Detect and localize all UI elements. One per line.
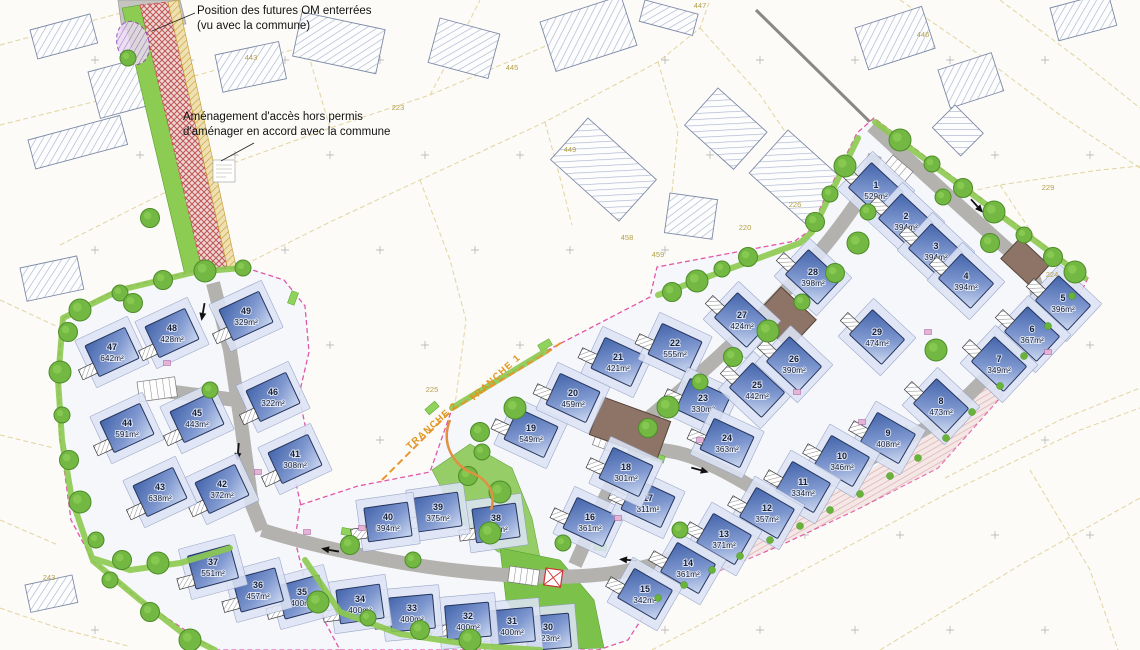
lot-number-label: 24: [722, 433, 732, 443]
lot-number-label: 31: [507, 616, 517, 626]
parcel-number: 224: [1046, 270, 1059, 279]
tree-icon: [829, 267, 837, 275]
tree-icon: [863, 207, 869, 213]
lot-area-label: 400m²: [500, 627, 524, 637]
parcel-number: 226: [789, 200, 802, 209]
lot-number-label: 26: [789, 354, 799, 364]
tree-icon: [157, 274, 165, 282]
tree-icon: [144, 212, 152, 220]
lot-area-label: 473m²: [929, 407, 953, 417]
tree-icon: [558, 538, 564, 544]
bush-icon: [655, 595, 662, 602]
lot-area-label: 361m²: [676, 569, 700, 579]
tree-icon: [893, 133, 902, 142]
bush-icon: [827, 507, 834, 514]
lot-area-label: 442m²: [745, 391, 769, 401]
tree-icon: [508, 401, 517, 410]
annotation-access-line2: d'aménager en accord avec la commune: [183, 125, 390, 140]
utility-box: [164, 361, 171, 366]
site-plan-drawing: 1529m²2394m²3394m²4394m²5396m²6367m²7349…: [0, 0, 1140, 650]
bush-icon: [797, 523, 804, 530]
tree-icon: [797, 297, 803, 303]
tree-icon: [363, 613, 369, 619]
tree-icon: [151, 556, 160, 565]
house-footprint: [414, 492, 462, 532]
bush-icon: [857, 491, 864, 498]
parcel-number: 446: [917, 30, 930, 39]
tree-icon: [483, 526, 492, 535]
bush-icon: [709, 567, 716, 574]
lot-area-label: 334m²: [791, 488, 815, 498]
lot-area-label: 394m²: [954, 282, 978, 292]
lot-area-label: 346m²: [830, 462, 854, 472]
lot-number-label: 25: [752, 380, 762, 390]
lot-number-label: 34: [355, 594, 365, 604]
lot-number-label: 32: [463, 611, 473, 621]
tree-icon: [477, 447, 483, 453]
tree-icon: [463, 633, 472, 642]
tree-icon: [91, 535, 97, 541]
lot-number-label: 38: [491, 513, 501, 523]
lot-area-label: 398m²: [801, 278, 825, 288]
parcel-number: 458: [621, 233, 634, 242]
bush-icon: [969, 409, 976, 416]
lot-number-label: 16: [585, 512, 595, 522]
tree-icon: [198, 264, 207, 273]
tree-icon: [642, 422, 650, 430]
lot-area-label: 371m²: [712, 540, 736, 550]
tree-icon: [1068, 265, 1077, 274]
utility-box: [925, 330, 932, 335]
bush-icon: [1045, 323, 1052, 330]
lot-area-label: 421m²: [606, 363, 630, 373]
parcel-number: 220: [739, 223, 752, 232]
lot-number-label: 13: [719, 529, 729, 539]
lot-number-label: 18: [621, 462, 631, 472]
lot-area-label: 357m²: [755, 514, 779, 524]
lot-area-label: 408m²: [876, 439, 900, 449]
lot-number-label: 2: [903, 211, 908, 221]
tree-icon: [938, 192, 944, 198]
bush-icon: [737, 553, 744, 560]
parcel-number: 223: [392, 103, 405, 112]
lot-area-label: 428m²: [160, 334, 184, 344]
parcel-number: 459: [652, 250, 665, 259]
lot-area-label: 375m²: [426, 513, 450, 523]
technical-plot-marker: [544, 568, 563, 587]
lot-area-label: 459m²: [561, 399, 585, 409]
lot-area-label: 372m²: [210, 490, 234, 500]
parcel-number: 449: [564, 145, 577, 154]
tree-icon: [57, 410, 63, 416]
lot-area-label: 457m²: [246, 591, 270, 601]
tree-icon: [53, 365, 62, 374]
tree-icon: [987, 205, 996, 214]
lot-area-label: 551m²: [201, 568, 225, 578]
bush-icon: [943, 435, 950, 442]
lot-number-label: 36: [253, 580, 263, 590]
lot-number-label: 15: [640, 584, 650, 594]
lot-area-label: 549m²: [519, 434, 543, 444]
tree-icon: [408, 555, 414, 561]
utility-box: [859, 420, 866, 425]
bush-icon: [915, 455, 922, 462]
bush-icon: [767, 537, 774, 544]
lot-number-label: 49: [241, 306, 251, 316]
bush-icon: [681, 582, 688, 589]
lot-area-label: 443m²: [185, 419, 209, 429]
utility-box: [615, 516, 622, 521]
lot-number-label: 3: [933, 241, 938, 251]
tree-icon: [62, 326, 70, 334]
lot-area-label: 638m²: [148, 493, 172, 503]
annotation-access-note: Aménagement d'accès hors permis d'aménag…: [183, 110, 390, 140]
tree-icon: [493, 485, 502, 494]
lot-area-label: 642m²: [100, 353, 124, 363]
tree-icon: [311, 595, 320, 604]
lot-number-label: 22: [670, 338, 680, 348]
tree-icon: [238, 263, 244, 269]
tree-icon: [73, 495, 82, 504]
tree-icon: [1019, 230, 1025, 236]
lot-number-label: 27: [737, 310, 747, 320]
lot-number-label: 37: [208, 557, 218, 567]
existing-building: [664, 193, 717, 239]
tree-icon: [666, 286, 674, 294]
lot-area-label: 390m²: [782, 365, 806, 375]
lot-number-label: 10: [837, 451, 847, 461]
parcel-number: 225: [426, 385, 439, 394]
lot-number-label: 19: [526, 423, 536, 433]
tree-icon: [123, 53, 129, 59]
lot-number-label: 45: [192, 408, 202, 418]
lot-number-label: 21: [613, 352, 623, 362]
tree-icon: [761, 324, 770, 333]
tree-icon: [344, 539, 352, 547]
lot-number-label: 28: [808, 267, 818, 277]
lot-number-label: 48: [167, 323, 177, 333]
annotation-om-line1: Position des futures OM enterrées: [197, 4, 372, 19]
lot-number-label: 6: [1029, 324, 1034, 334]
tree-icon: [205, 385, 211, 391]
tree-icon: [929, 343, 938, 352]
utility-box: [697, 438, 704, 443]
tree-icon: [838, 159, 847, 168]
house-footprint: [364, 502, 412, 542]
utility-box: [1045, 350, 1052, 355]
lot-area-label: 424m²: [730, 321, 754, 331]
tree-icon: [63, 454, 71, 462]
lot-number-label: 39: [433, 502, 443, 512]
tree-icon: [957, 182, 965, 190]
lot-area-label: 394m²: [376, 523, 400, 533]
tree-icon: [927, 159, 933, 165]
tree-icon: [127, 297, 135, 305]
lot-number-label: 46: [268, 387, 278, 397]
lot-area-label: 555m²: [663, 349, 687, 359]
tree-icon: [727, 351, 735, 359]
annotation-access-line1: Aménagement d'accès hors permis: [183, 110, 390, 125]
bush-icon: [887, 473, 894, 480]
lot-number-label: 40: [383, 512, 393, 522]
lot-area-label: 396m²: [1051, 304, 1075, 314]
utility-box: [359, 526, 366, 531]
lot-area-label: 363m²: [715, 444, 739, 454]
tree-icon: [73, 303, 82, 312]
bush-icon: [1021, 353, 1028, 360]
lot-area-label: 329m²: [234, 317, 258, 327]
tree-icon: [183, 633, 192, 642]
lot-number-label: 9: [885, 428, 890, 438]
utility-box: [794, 390, 801, 395]
lot-number-label: 35: [297, 587, 307, 597]
parcel-number: 443: [245, 53, 258, 62]
lot-number-label: 33: [407, 603, 417, 613]
lot-number-label: 30: [543, 622, 553, 632]
tree-icon: [695, 377, 701, 383]
lot-area-label: 322m²: [261, 398, 285, 408]
lot-number-label: 12: [762, 503, 772, 513]
tree-icon: [690, 274, 699, 283]
lot-number-label: 47: [107, 342, 117, 352]
tree-icon: [717, 264, 723, 270]
lot-number-label: 14: [683, 558, 693, 568]
annotation-om-line2: (vu avec la commune): [197, 19, 372, 34]
tree-icon: [742, 251, 750, 259]
lot-number-label: 20: [568, 388, 578, 398]
lot-area-label: 301m²: [614, 473, 638, 483]
tree-icon: [675, 525, 681, 531]
parcel-number: 229: [1042, 183, 1055, 192]
tree-icon: [851, 236, 860, 245]
lot-number-label: 1: [873, 180, 878, 190]
lot-area-label: 342m²: [633, 595, 657, 605]
lot-area-label: 591m²: [115, 429, 139, 439]
tree-icon: [414, 624, 422, 632]
parcel-number: 445: [506, 63, 519, 72]
bush-icon: [997, 383, 1004, 390]
lot-number-label: 42: [217, 479, 227, 489]
lot-number-label: 43: [155, 482, 165, 492]
lot-area-label: 361m²: [578, 523, 602, 533]
lot-number-label: 7: [996, 354, 1001, 364]
tree-icon: [825, 189, 831, 195]
tree-icon: [661, 400, 670, 409]
lot-area-label: 308m²: [283, 460, 307, 470]
parcel-number: 243: [43, 573, 56, 582]
utility-box: [304, 530, 311, 535]
tree-icon: [984, 237, 992, 245]
lot-number-label: 29: [872, 327, 882, 337]
lot-area-label: 349m²: [987, 365, 1011, 375]
tree-icon: [809, 216, 817, 224]
lot-number-label: 8: [938, 396, 943, 406]
tree-icon: [115, 288, 121, 294]
bush-icon: [1069, 293, 1076, 300]
lot-number-label: 4: [963, 271, 968, 281]
tree-icon: [144, 606, 152, 614]
lot-number-label: 23: [698, 393, 708, 403]
parcel-number: 447: [694, 1, 707, 10]
tree-icon: [116, 554, 124, 562]
tree-icon: [474, 426, 482, 434]
lot-number-label: 44: [122, 418, 132, 428]
tree-icon: [1047, 251, 1055, 259]
lot-area-label: 367m²: [1020, 335, 1044, 345]
lot-number-label: 5: [1060, 293, 1065, 303]
utility-box: [255, 470, 262, 475]
lot-number-label: 11: [798, 477, 808, 487]
site-plan-page: 1529m²2394m²3394m²4394m²5396m²6367m²7349…: [0, 0, 1140, 650]
small-note-box: [213, 160, 235, 182]
tree-icon: [105, 575, 111, 581]
lot-number-label: 41: [290, 449, 300, 459]
lot-area-label: 474m²: [865, 338, 889, 348]
annotation-om-note: Position des futures OM enterrées (vu av…: [197, 4, 372, 34]
